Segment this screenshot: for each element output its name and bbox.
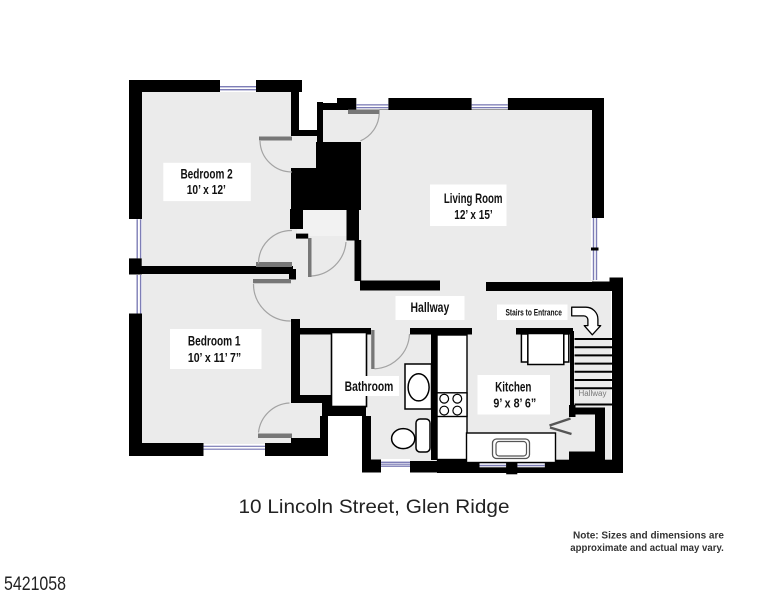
svg-text:Kitchen: Kitchen	[495, 380, 531, 395]
svg-text:Hallway: Hallway	[411, 300, 450, 315]
svg-text:5421058: 5421058	[4, 573, 66, 594]
svg-text:approximate and actual may var: approximate and actual may vary.	[570, 543, 724, 554]
svg-text:Stairs to Entrance: Stairs to Entrance	[506, 307, 562, 317]
svg-text:Bedroom 1: Bedroom 1	[188, 334, 241, 349]
svg-text:Bathroom: Bathroom	[345, 379, 394, 394]
svg-text:Bedroom 2: Bedroom 2	[180, 166, 232, 181]
svg-text:10 Lincoln Street, Glen Ridge: 10 Lincoln Street, Glen Ridge	[239, 496, 510, 518]
svg-text:Hallway: Hallway	[578, 389, 606, 398]
svg-text:9’ x 8’ 6”: 9’ x 8’ 6”	[493, 396, 536, 410]
svg-text:12’ x 15’: 12’ x 15’	[454, 208, 492, 222]
svg-text:10’ x 11’ 7”: 10’ x 11’ 7”	[188, 351, 241, 365]
svg-text:Living Room: Living Room	[444, 191, 503, 206]
svg-text:Note: Sizes and dimensions ar: Note: Sizes and dimensions are	[573, 531, 724, 542]
svg-text:10’ x 12’: 10’ x 12’	[187, 183, 226, 197]
